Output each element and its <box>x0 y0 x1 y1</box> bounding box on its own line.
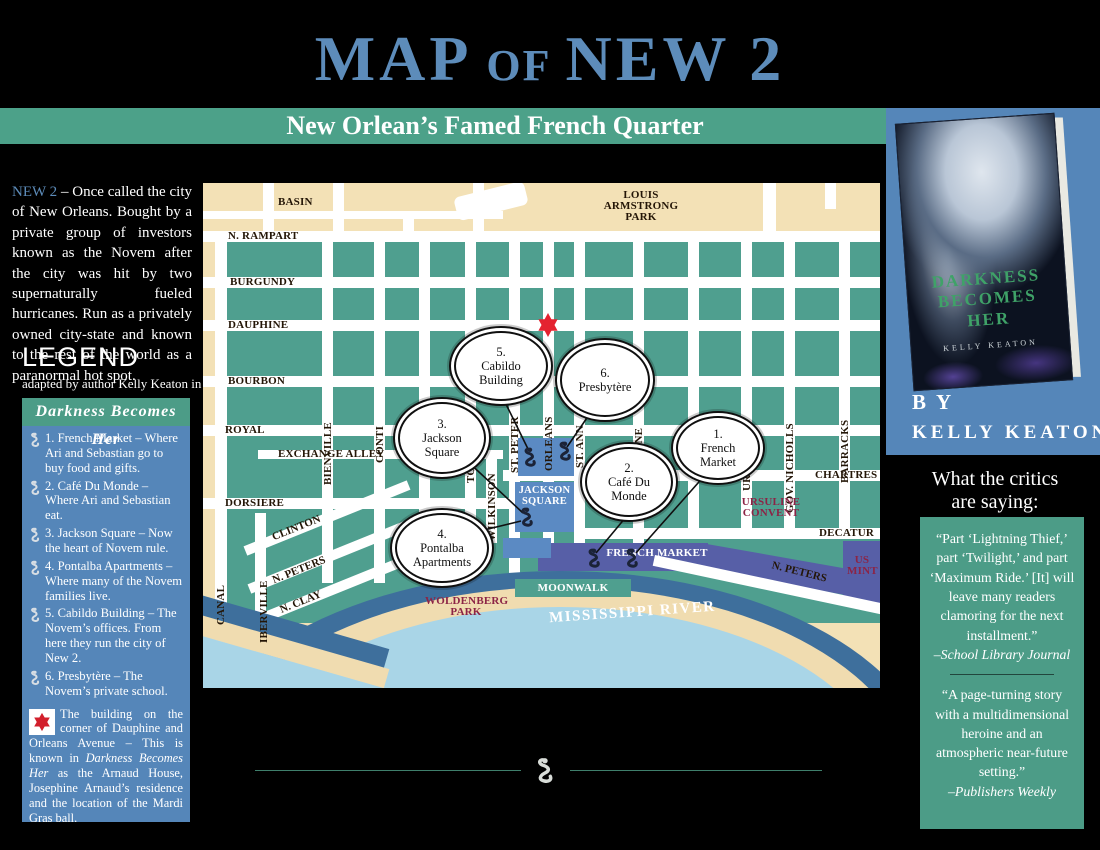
label-us-mint: US MINT <box>847 555 877 577</box>
intro-lead: NEW 2 <box>12 184 57 200</box>
callout-num: 1. <box>713 427 722 441</box>
snake-icon <box>29 526 41 556</box>
callout-cafe-du-monde: 2. Café Du Monde <box>585 447 673 517</box>
street-ursulines <box>741 231 752 539</box>
label-ursuline-convent: URSULINE CONVENT <box>739 497 803 519</box>
callout-french-market: 1. French Market <box>676 416 760 480</box>
callout-name: Jackson Square <box>422 431 462 459</box>
quote-attribution: –School Library Journal <box>929 645 1075 664</box>
street-gap <box>403 211 414 231</box>
callout-num: 4. <box>437 527 446 541</box>
critics-quote-box: “Part ‘Lightning Thief,’ part ‘Twilight,… <box>920 517 1084 829</box>
jackson-square-plaza <box>503 538 551 558</box>
legend-item-text: 5. Cabildo Building – The Novem’s office… <box>45 606 183 665</box>
star-icon <box>29 709 55 735</box>
legend-item-text: 1. French Market – Where Ari and Sebasti… <box>45 431 183 476</box>
legend-items: 1. French Market – Where Ari and Sebasti… <box>22 426 190 699</box>
quote-text: “A page-turning story with a multidimens… <box>929 685 1075 782</box>
label-louis-armstrong-park: LOUIS ARMSTRONG PARK <box>598 190 684 223</box>
callout-cabildo-building: 5. Cabildo Building <box>454 331 548 401</box>
legend-subtitle: adapted by author Kelly Keaton in <box>22 376 201 392</box>
snake-icon <box>29 669 41 699</box>
poster: MAP OF NEW 2 New Orlean’s Famed French Q… <box>0 0 1100 850</box>
street-barracks <box>839 231 850 539</box>
legend-box: Darkness Becomes Her 1. French Market – … <box>22 398 190 822</box>
legend-item: 6. Presbytère – The Novem’s private scho… <box>29 669 183 699</box>
callout-name: French Market <box>700 441 736 469</box>
title-of: OF <box>476 41 561 90</box>
label-conti: CONTI <box>375 426 386 463</box>
callout-jackson-square: 3. Jackson Square <box>398 402 486 474</box>
label-bienville: BIENVILLE <box>323 422 334 485</box>
label-jackson-square: JACKSON SQUARE <box>517 485 572 507</box>
street-canal <box>215 231 227 643</box>
label-dauphine: DAUPHINE <box>228 320 288 331</box>
footer-rule-right <box>570 770 822 771</box>
page-title: MAP OF NEW 2 <box>0 22 1100 96</box>
street-bienville <box>322 231 333 583</box>
legend-item: 1. French Market – Where Ari and Sebasti… <box>29 431 183 476</box>
footnote-post: as the Arnaud House, Josephine Arnaud’s … <box>29 766 183 825</box>
label-st-peter: ST. PETER <box>510 416 521 473</box>
callout-name: Café Du Monde <box>608 475 650 503</box>
book-cover-title: DARKNESS BECOMES HER <box>906 263 1068 335</box>
street-gap <box>763 183 776 231</box>
label-bourbon: BOURBON <box>228 376 285 387</box>
street-royal <box>203 425 880 436</box>
legend-item: 2. Café Du Monde – Where Ari and Sebasti… <box>29 479 183 524</box>
legend-book-title: Darkness Becomes Her <box>22 398 190 426</box>
callout-num: 6. <box>600 366 609 380</box>
french-quarter-map: BASIN N. RAMPART BURGUNDY DAUPHINE BOURB… <box>203 183 880 688</box>
street-st-phlip <box>688 231 699 539</box>
legend-title: LEGEND <box>22 342 139 373</box>
street-dauphine <box>203 320 880 331</box>
callout-pontalba-apartments: 4. Pontalba Apartments <box>395 513 489 583</box>
quote-divider <box>950 674 1054 675</box>
label-canal: CANAL <box>216 585 227 625</box>
quote-text: “Part ‘Lightning Thief,’ part ‘Twilight,… <box>929 529 1075 645</box>
label-woldenberg-park: WOLDENBERG PARK <box>425 596 507 618</box>
label-barracks: BARRACKS <box>840 420 851 483</box>
label-wilkinson: WILKINSON <box>487 473 498 541</box>
label-burgundy: BURGUNDY <box>230 277 295 288</box>
snake-icon <box>29 479 41 524</box>
legend-item: 4. Pontalba Apartments –Where many of th… <box>29 559 183 604</box>
legend-item: 3. Jackson Square – Now the heart of Nov… <box>29 526 183 556</box>
snake-icon <box>29 606 41 665</box>
by-label: BY <box>912 390 961 415</box>
label-decatur: DECATUR <box>819 528 874 539</box>
book-cover-author: KELLY KEATON <box>911 335 1069 355</box>
label-orleans: ORLEANS <box>544 416 555 471</box>
street-gap <box>263 183 274 231</box>
author-name: KELLY KEATON <box>912 422 1100 444</box>
legend-item-text: 4. Pontalba Apartments –Where many of th… <box>45 559 183 604</box>
legend-item: 5. Cabildo Building – The Novem’s office… <box>29 606 183 665</box>
label-st-ann: ST. ANN <box>575 425 586 468</box>
legend-item-text: 2. Café Du Monde – Where Ari and Sebasti… <box>45 479 183 524</box>
callout-num: 3. <box>437 417 446 431</box>
star-footnote: The building on the corner of Dauphine a… <box>29 707 183 826</box>
label-french-market: FRENCH MARKET <box>601 548 713 559</box>
quote-attribution: –Publishers Weekly <box>929 782 1075 801</box>
callout-num: 2. <box>624 461 633 475</box>
snake-icon <box>29 431 41 476</box>
street-n-rampart <box>203 231 880 242</box>
label-n-rampart: N. RAMPART <box>228 231 298 242</box>
callout-name: Cabildo Building <box>479 359 523 387</box>
callout-num: 5. <box>496 345 505 359</box>
label-royal: ROYAL <box>225 425 265 436</box>
critics-heading: What the critics are saying: <box>893 468 1097 514</box>
legend-item-text: 3. Jackson Square – Now the heart of Nov… <box>45 526 183 556</box>
callout-name: Presbytère <box>579 380 632 394</box>
subtitle-banner: New Orlean’s Famed French Quarter <box>0 108 886 144</box>
street-burgundy <box>203 277 880 288</box>
book-cover: DARKNESS BECOMES HER KELLY KEATON <box>895 113 1073 392</box>
footer-rule-left <box>255 770 521 771</box>
legend-item-text: 6. Presbytère – The Novem’s private scho… <box>45 669 183 699</box>
label-dorsiere: DORSIERE <box>225 498 284 509</box>
callout-presbytere: 6. Presbytère <box>560 343 650 417</box>
street-gap <box>825 183 836 209</box>
title-map: MAP <box>315 23 473 94</box>
title-new2: NEW 2 <box>566 23 786 94</box>
label-basin: BASIN <box>278 197 313 208</box>
label-iberville: IBERVILLE <box>259 580 270 643</box>
subtitle: New Orlean’s Famed French Quarter <box>215 111 775 141</box>
book-cover-art: DARKNESS BECOMES HER KELLY KEATON <box>895 113 1073 392</box>
book-panel: DARKNESS BECOMES HER KELLY KEATON BY KEL… <box>886 108 1100 455</box>
footer-snake-icon <box>533 757 557 790</box>
street-gap <box>333 183 344 231</box>
label-moonwalk: MOONWALK <box>515 583 631 594</box>
snake-icon <box>29 559 41 604</box>
callout-name: Pontalba Apartments <box>413 541 471 569</box>
